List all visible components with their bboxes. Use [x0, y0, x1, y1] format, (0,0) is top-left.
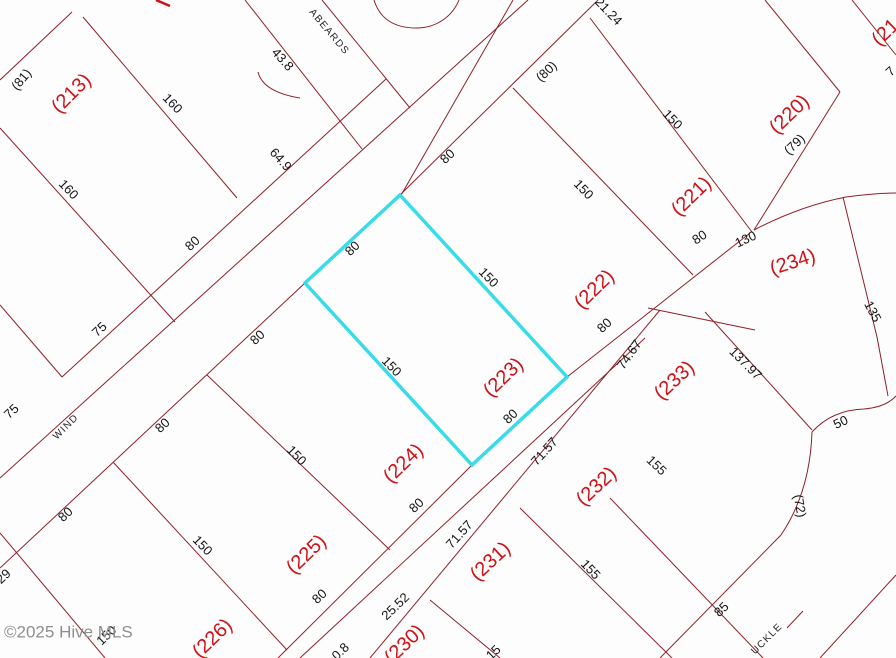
parcel-number-label: (232) — [572, 463, 621, 511]
dimension-label: 7 — [883, 63, 896, 79]
dimension-label: 155 — [578, 556, 604, 582]
parcel-boundary-line — [62, 79, 386, 377]
parcel-boundary-line — [0, 12, 72, 80]
parcel-number-label: (224) — [379, 439, 428, 487]
dimension-label: 150 — [284, 442, 310, 468]
dimension-label: 80 — [309, 586, 330, 607]
parcel-boundary-line — [0, 305, 62, 377]
street-name-label: UCKLE — [749, 621, 785, 657]
dimension-label: 71.57 — [443, 517, 476, 551]
parcel-boundary-line — [787, 611, 803, 628]
street-name-label: ABEARDS — [307, 7, 352, 57]
parcel-number-label: (230) — [380, 620, 429, 658]
parcel-boundary-line — [520, 508, 672, 658]
parcel-number-label: (21 — [867, 15, 896, 51]
parcel-boundary-line — [610, 498, 763, 658]
dimension-label: 80 — [689, 227, 709, 247]
parcel-number-label: (234) — [767, 245, 818, 280]
dimension-label: 80 — [342, 238, 363, 259]
dimension-label: (80) — [533, 58, 560, 85]
dimension-label: 43.8 — [269, 45, 297, 74]
dimension-label: 150 — [571, 176, 597, 202]
parcel-boundary-line — [322, 0, 410, 108]
dimension-label: 150 — [379, 353, 405, 379]
parcel-number-label: (226) — [188, 614, 237, 658]
dimension-label: (72) — [791, 493, 810, 518]
map-labels-layer: (81)160(213)16043.864.9ABEARDS80807575WI… — [0, 0, 896, 658]
dimension-label: 137.97 — [726, 344, 765, 383]
dimension-label: 85 — [711, 599, 732, 620]
dimension-label: 80 — [247, 327, 268, 348]
parcel-number-label: (221) — [667, 172, 716, 220]
parcel-number-label: (222) — [570, 265, 619, 313]
plat-map-viewport: (81)160(213)16043.864.9ABEARDS80807575WI… — [0, 0, 896, 658]
parcel-boundary-line — [83, 17, 237, 198]
parcel-boundary-line — [648, 308, 755, 330]
dimension-label: 155 — [644, 452, 670, 478]
dimension-label: 80 — [152, 415, 173, 436]
parcel-boundary-line — [245, 0, 362, 149]
parcel-number-label: (223) — [479, 353, 528, 401]
parcel-number-label: (233) — [650, 357, 699, 405]
highlighted-parcel[interactable] — [305, 195, 567, 465]
dimension-label: 130 — [733, 228, 759, 251]
parcel-boundary-curve — [374, 0, 459, 28]
dimension-label: 25.52 — [378, 590, 412, 623]
dimension-label: 29 — [0, 566, 14, 587]
dimension-label: (79) — [781, 131, 808, 158]
dimension-label: (81) — [8, 66, 34, 93]
parcel-boundary-line — [113, 462, 287, 650]
dimension-label: 21.24 — [592, 0, 625, 28]
parcel-boundary-curve — [781, 432, 812, 535]
dimension-label: 0.8 — [329, 640, 352, 658]
parcel-boundary-lines-layer — [0, 0, 896, 658]
dimension-label: 80 — [594, 315, 615, 336]
parcel-number-label: (213) — [47, 69, 96, 118]
dimension-label: 80 — [437, 146, 458, 167]
parcel-boundary-line — [820, 575, 896, 658]
dimension-label: 150 — [190, 532, 216, 558]
parcel-boundary-curve — [754, 193, 896, 230]
parcel-boundary-curve — [258, 72, 300, 98]
parcel-boundary-line — [567, 233, 750, 377]
dimension-label: 80 — [55, 504, 76, 525]
parcel-boundary-line — [0, 128, 175, 322]
dimension-label: 150 — [476, 264, 502, 290]
dimension-label: 135 — [861, 298, 884, 324]
dimension-label: 64.9 — [267, 145, 295, 174]
parcel-boundary-line — [400, 0, 513, 197]
dimension-label: 15 — [483, 642, 504, 658]
parcel-boundary-line — [400, 0, 598, 195]
watermark: ©2025 Hive MLS — [4, 622, 133, 641]
dimension-label: 150 — [660, 106, 686, 132]
parcel-number-label: (225) — [282, 530, 331, 578]
parcel-boundary-curve — [812, 396, 896, 432]
dimension-label: 71.57 — [528, 434, 561, 468]
parcel-number-label: (220) — [765, 90, 814, 138]
dimension-label: 75 — [1, 401, 22, 422]
dimension-label: 50 — [831, 412, 850, 432]
parcel-boundary-curve — [156, 0, 170, 6]
plat-map: (81)160(213)16043.864.9ABEARDS80807575WI… — [0, 0, 896, 658]
dimension-label: 160 — [56, 176, 82, 202]
parcel-number-label: (231) — [466, 538, 515, 586]
parcel-boundary-line — [877, 337, 888, 396]
parcel-boundary-line — [765, 0, 840, 92]
